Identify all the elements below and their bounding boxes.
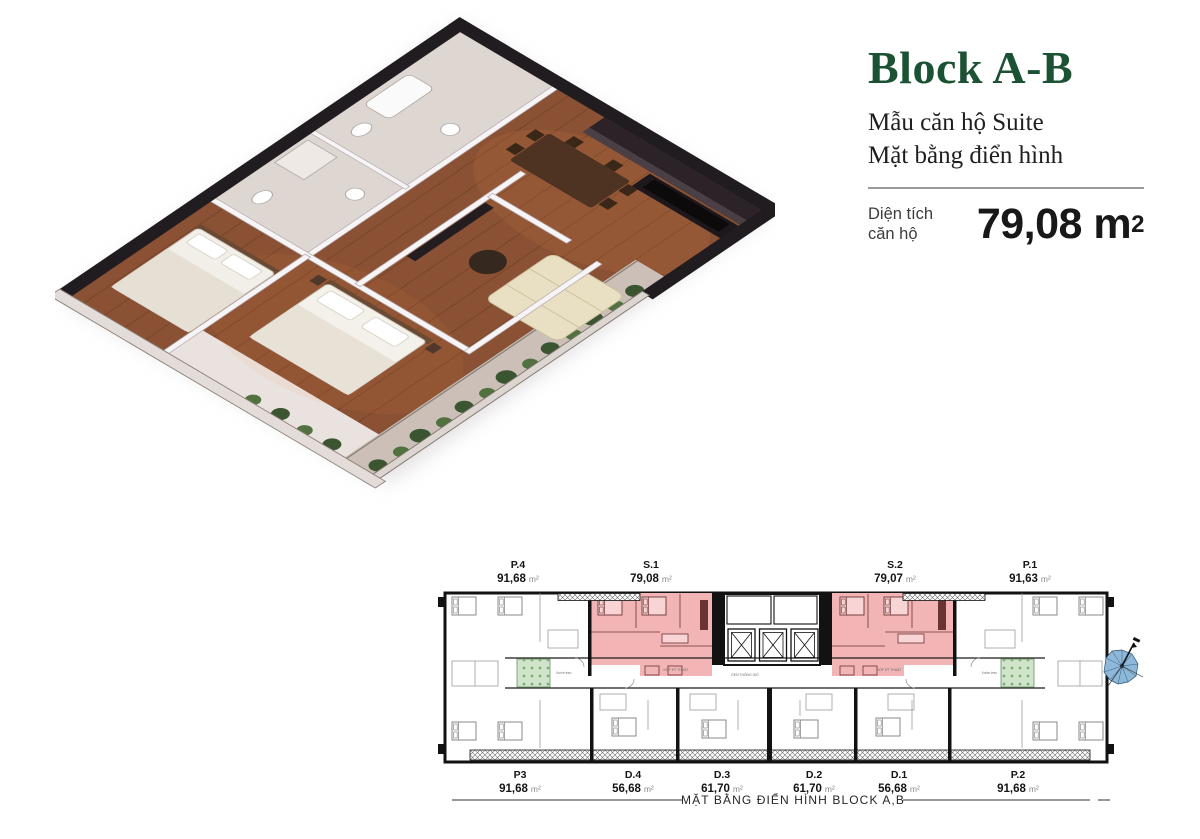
unit-area-s1: 79,08m² xyxy=(630,573,672,585)
stairs xyxy=(774,596,817,624)
caption-text: MẶT BẰNG ĐIỂN HÌNH BLOCK A,B xyxy=(681,792,905,807)
header-block: Block A-B Mẫu căn hộ Suite Mặt bằng điển… xyxy=(868,44,1144,249)
unit-label-d3: D.3 xyxy=(714,769,731,781)
unit-area-d4: 56,68m² xyxy=(612,783,654,795)
apartment-3d-render xyxy=(55,10,775,585)
technical-box-label-2: HỘP KỸ THUẬT xyxy=(877,667,902,672)
technical-box-label-1: HỘP KỸ THUẬT xyxy=(664,667,689,672)
garden-label-left: Vườn treo xyxy=(556,671,572,675)
unit-label-s2: S.2 xyxy=(887,559,903,571)
unit-label-p4: P.4 xyxy=(511,559,526,571)
area-value: 79,08 m2 xyxy=(977,200,1144,249)
bottom-unit-labels: P3 91,68m² D.4 56,68m² D.3 61,70m² D.2 6… xyxy=(499,769,1039,795)
top-unit-labels: P.4 91,68m² S.1 79,08m² S.2 79,07m² P.1 … xyxy=(497,559,1051,585)
apartment-floorplate xyxy=(55,17,775,488)
corridor xyxy=(505,658,1045,688)
elevator-shafts xyxy=(728,629,818,661)
unit-area-p3: 91,68m² xyxy=(499,783,541,795)
unit-area-p2: 91,68m² xyxy=(997,783,1039,795)
floor-plan: P.4 91,68m² S.1 79,08m² S.2 79,07m² P.1 … xyxy=(430,548,1170,828)
unit-label-d2: D.2 xyxy=(806,769,823,781)
unit-label-d1: D.1 xyxy=(891,769,908,781)
subtitle-line1: Mẫu căn hộ Suite xyxy=(868,106,1144,139)
unit-s1-highlight xyxy=(590,593,712,676)
unit-label-s1: S.1 xyxy=(643,559,659,571)
area-label: Diện tích căn hộ xyxy=(868,205,933,245)
area-row: Diện tích căn hộ 79,08 m2 xyxy=(868,200,1144,249)
subtitle-line2: Mặt bằng điển hình xyxy=(868,139,1144,172)
unit-label-d4: D.4 xyxy=(625,769,642,781)
unit-label-p1: P.1 xyxy=(1023,559,1038,571)
compass-icon xyxy=(1104,637,1143,686)
unit-label-p2: P.2 xyxy=(1011,769,1026,781)
vent-core-label: GEN THÔNG GIÓ xyxy=(731,672,759,677)
unit-area-p4: 91,68m² xyxy=(497,573,539,585)
subtitle: Mẫu căn hộ Suite Mặt bằng điển hình xyxy=(868,106,1144,172)
area-label-line1: Diện tích xyxy=(868,205,933,225)
unit-area-s2: 79,07m² xyxy=(874,573,916,585)
unit-area-p1: 91,63m² xyxy=(1009,573,1051,585)
elevator-core xyxy=(724,594,820,665)
brochure-page: Block A-B Mẫu căn hộ Suite Mặt bằng điển… xyxy=(0,0,1200,839)
unit-label-p3: P3 xyxy=(514,769,527,781)
garden-label-right: Vườn treo xyxy=(982,671,998,675)
block-title: Block A-B xyxy=(868,44,1144,92)
unit-s2-highlight xyxy=(832,593,955,676)
stairs xyxy=(727,596,771,624)
divider-line xyxy=(868,187,1144,189)
area-label-line2: căn hộ xyxy=(868,225,933,245)
balcony-strips xyxy=(470,594,1090,762)
